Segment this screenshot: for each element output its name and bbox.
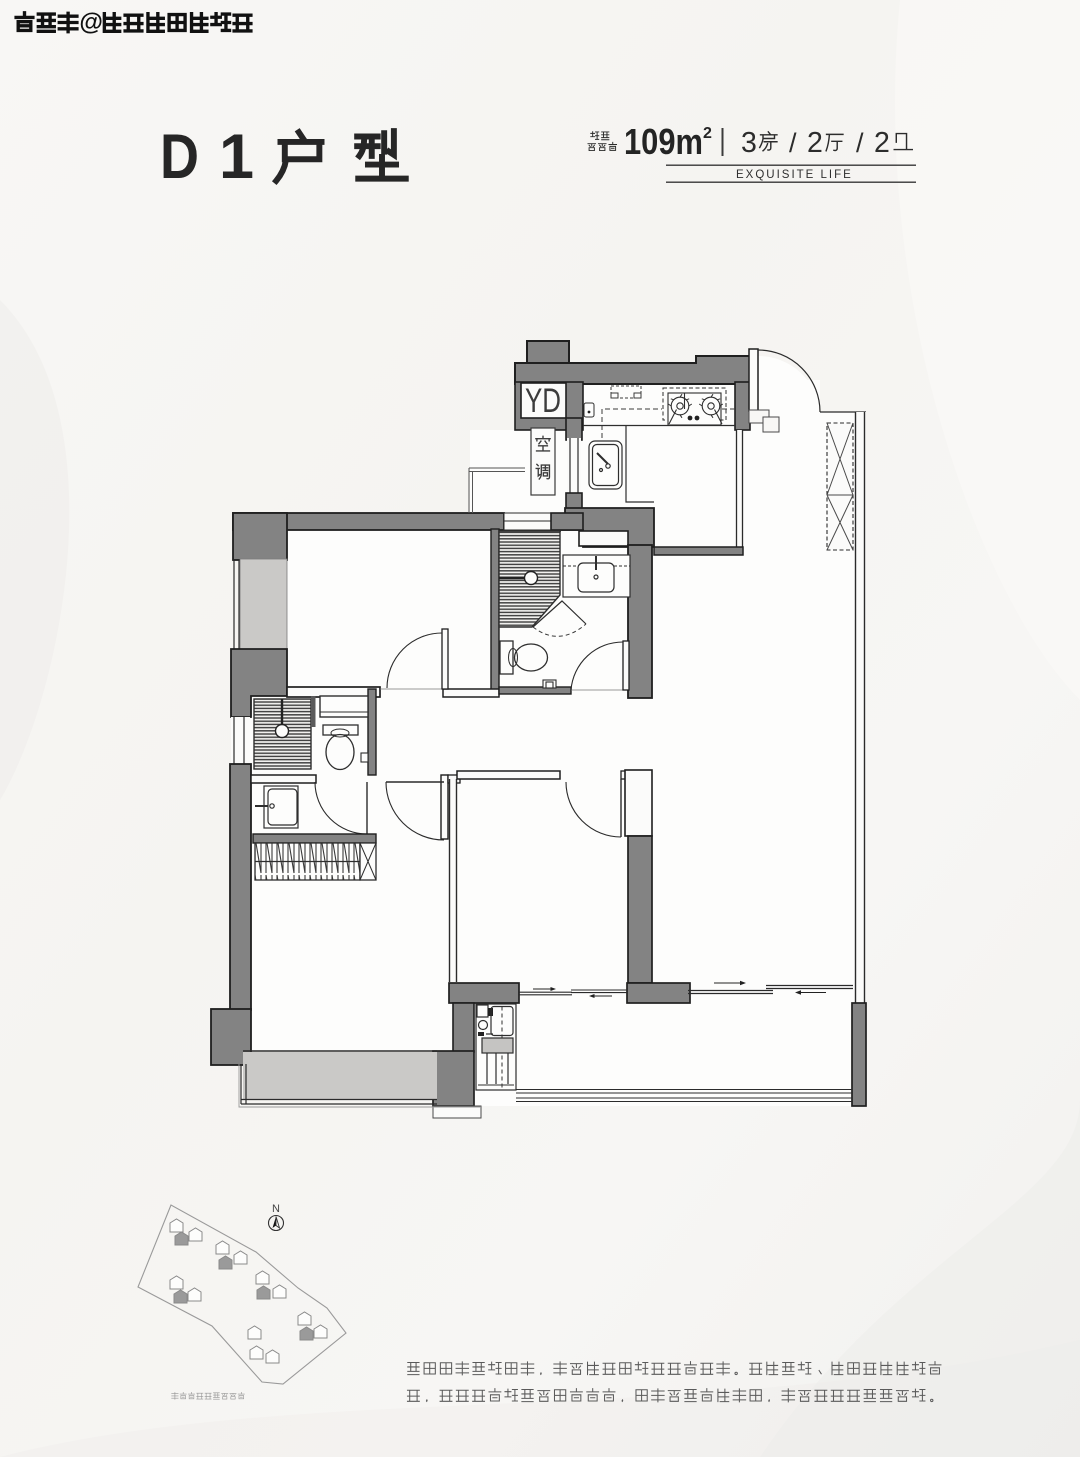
- svg-text:N: N: [272, 1203, 280, 1215]
- svg-text:2: 2: [703, 125, 712, 142]
- svg-text:D: D: [160, 122, 199, 192]
- svg-text:/: /: [856, 128, 864, 158]
- svg-text:@: @: [79, 9, 103, 36]
- svg-text:2: 2: [807, 127, 823, 159]
- svg-text:EXQUISITE LIFE: EXQUISITE LIFE: [736, 169, 853, 181]
- svg-text:YD: YD: [525, 382, 561, 420]
- svg-text:/: /: [789, 128, 797, 158]
- svg-text:2: 2: [874, 127, 890, 159]
- svg-text:109m: 109m: [624, 121, 703, 162]
- svg-text:1: 1: [219, 122, 254, 192]
- svg-text:3: 3: [741, 127, 757, 159]
